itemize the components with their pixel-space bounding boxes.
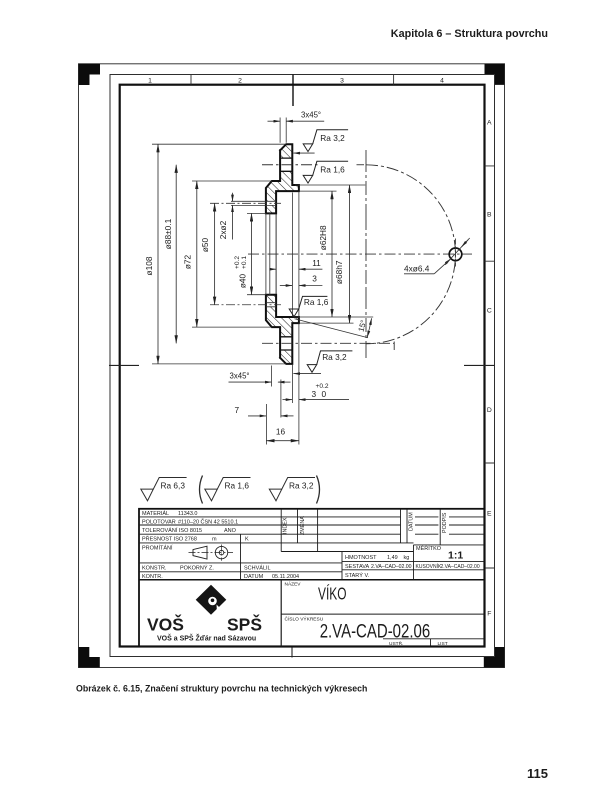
svg-text:VOŠ a SPŠ Žďár nad Sázavou: VOŠ a SPŠ Žďár nad Sázavou <box>157 633 256 642</box>
svg-text:15°: 15° <box>357 319 369 333</box>
svg-text:PŘESNOST ISO 2768: PŘESNOST ISO 2768 <box>142 535 197 543</box>
svg-text:4: 4 <box>440 78 444 85</box>
svg-text:D: D <box>487 407 492 414</box>
svg-text:ø72: ø72 <box>183 254 193 269</box>
svg-text:Ra 6,3: Ra 6,3 <box>161 480 186 490</box>
svg-text:DATUM: DATUM <box>244 574 264 580</box>
svg-text:PROMÍTÁNÍ: PROMÍTÁNÍ <box>142 545 173 552</box>
svg-text:ø50: ø50 <box>200 237 210 252</box>
svg-text:SESTAVA: SESTAVA <box>345 564 369 570</box>
svg-text:POKORNÝ Z.: POKORNÝ Z. <box>180 564 214 571</box>
svg-text:m: m <box>212 537 217 543</box>
svg-text:Ra 3,2: Ra 3,2 <box>289 480 314 490</box>
svg-text:ø40: ø40 <box>238 273 248 288</box>
svg-text:MATERIÁL: MATERIÁL <box>142 510 169 517</box>
svg-text:INDEX: INDEX <box>282 517 288 534</box>
svg-text:A: A <box>487 120 492 127</box>
svg-text:NÁZEV: NÁZEV <box>285 580 302 587</box>
svg-text:2: 2 <box>238 78 242 85</box>
svg-text:0: 0 <box>322 389 327 399</box>
svg-text:3: 3 <box>312 274 317 284</box>
svg-text:E: E <box>487 511 492 518</box>
svg-text:VOŠ: VOŠ <box>147 614 184 635</box>
svg-text:ČÍSLO VÝKRESU: ČÍSLO VÝKRESU <box>285 616 324 623</box>
svg-text:1: 1 <box>148 78 152 85</box>
svg-text:3x45°: 3x45° <box>301 110 321 119</box>
svg-text:2.VA-CAD-02.06: 2.VA-CAD-02.06 <box>320 622 431 643</box>
svg-text:#110–20 ČSN 42 5510.1: #110–20 ČSN 42 5510.1 <box>178 518 238 525</box>
svg-text:3: 3 <box>340 78 344 85</box>
svg-text:3: 3 <box>312 389 317 399</box>
svg-text:ø62H8: ø62H8 <box>318 225 328 250</box>
svg-text:STARÝ V.: STARÝ V. <box>345 572 370 579</box>
svg-text:Ra 1,6: Ra 1,6 <box>304 297 329 307</box>
svg-text:16: 16 <box>276 426 286 436</box>
svg-text:115: 115 <box>527 766 548 781</box>
svg-text:Ra 1,6: Ra 1,6 <box>225 480 250 490</box>
svg-text:+0.1: +0.1 <box>241 256 248 269</box>
svg-text:05.11.2004: 05.11.2004 <box>272 574 299 580</box>
svg-text:Ra 3,2: Ra 3,2 <box>322 352 347 362</box>
svg-text:11343.0: 11343.0 <box>178 511 197 517</box>
svg-text:ø88±0.1: ø88±0.1 <box>163 218 173 249</box>
svg-text:ø68h7: ø68h7 <box>334 260 344 284</box>
svg-text:+0.2: +0.2 <box>316 383 329 390</box>
svg-text:SCHVÁLIL: SCHVÁLIL <box>244 564 271 571</box>
svg-text:2xø2: 2xø2 <box>218 220 228 239</box>
svg-text:Obrázek č. 6.15, Značení struk: Obrázek č. 6.15, Značení struktury povrc… <box>76 684 367 694</box>
svg-text:ZMĚNA: ZMĚNA <box>298 516 306 535</box>
svg-text:1:1: 1:1 <box>448 550 463 562</box>
svg-text:DATUM: DATUM <box>408 512 414 531</box>
svg-text:1,49: 1,49 <box>387 555 398 561</box>
svg-text:11: 11 <box>312 258 321 268</box>
svg-text:VÍKO: VÍKO <box>318 584 347 604</box>
svg-text:Kapitola 6 – Struktura povrchu: Kapitola 6 – Struktura povrchu <box>391 28 548 40</box>
svg-text:B: B <box>487 212 492 219</box>
svg-text:ANO: ANO <box>224 528 237 534</box>
svg-text:Ra 3,2: Ra 3,2 <box>320 133 345 143</box>
svg-text:F: F <box>487 611 491 618</box>
svg-text:SPŠ: SPŠ <box>227 614 262 635</box>
svg-text:3x45°: 3x45° <box>230 371 250 380</box>
svg-text:4xø6.4: 4xø6.4 <box>404 263 430 273</box>
svg-text:Ra 1,6: Ra 1,6 <box>320 164 345 174</box>
svg-text:TOLEROVÁNÍ ISO 8015: TOLEROVÁNÍ ISO 8015 <box>142 527 202 534</box>
svg-text:KONSTR.: KONSTR. <box>142 565 167 571</box>
svg-text:LIST: LIST <box>438 641 448 647</box>
svg-text:2.VA–CAD–02.00: 2.VA–CAD–02.00 <box>371 564 412 570</box>
svg-text:KUSOVNÍK: KUSOVNÍK <box>416 563 443 570</box>
svg-text:MĚŘÍTKO: MĚŘÍTKO <box>416 544 442 552</box>
svg-text:C: C <box>487 308 492 315</box>
svg-text:K: K <box>245 537 249 543</box>
svg-text:7: 7 <box>234 405 239 415</box>
svg-text:2.VA–CAD–02.00: 2.VA–CAD–02.00 <box>441 564 480 570</box>
svg-text:PODPIS: PODPIS <box>442 512 448 533</box>
svg-text:POLOTOVAR: POLOTOVAR <box>142 519 176 525</box>
svg-text:kg: kg <box>404 555 410 561</box>
svg-text:HMOTNOST: HMOTNOST <box>345 555 377 561</box>
svg-text:KONTR.: KONTR. <box>142 574 163 580</box>
svg-text:ø108: ø108 <box>144 256 154 275</box>
